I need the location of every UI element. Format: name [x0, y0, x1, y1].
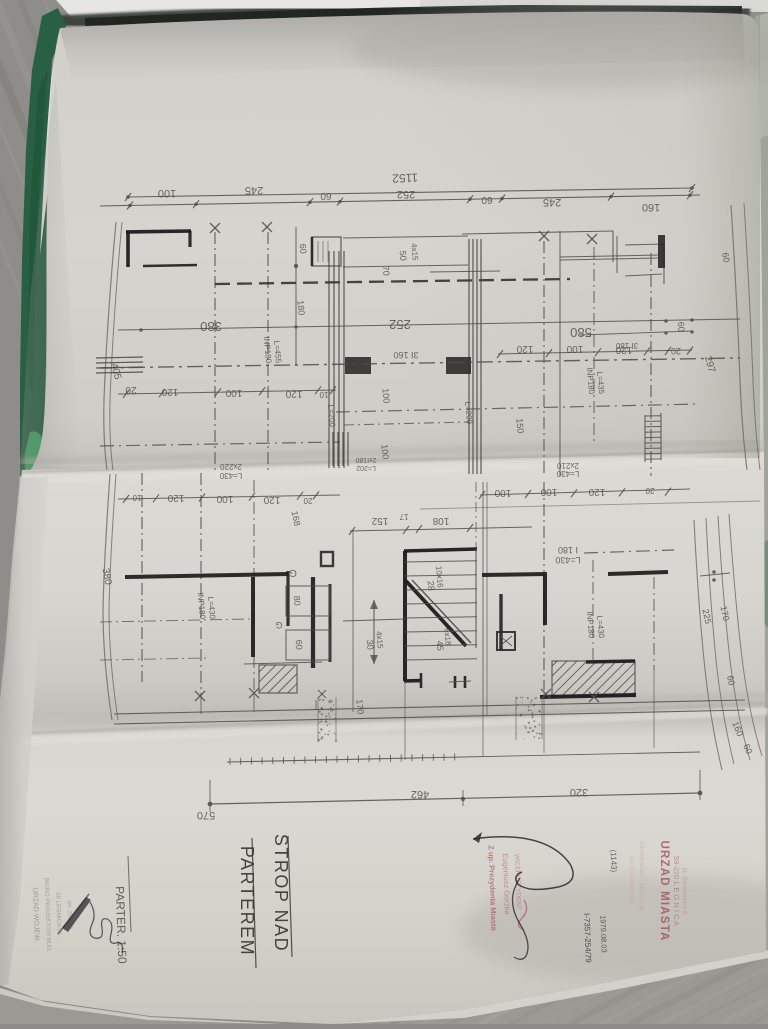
- svg-text:28: 28: [426, 580, 437, 591]
- svg-text:20: 20: [671, 346, 681, 356]
- svg-text:59-220 L E G N I C A: 59-220 L E G N I C A: [672, 856, 681, 926]
- svg-text:60: 60: [298, 243, 309, 254]
- svg-text:L=430: L=430: [555, 555, 580, 565]
- svg-text:120: 120: [285, 388, 302, 399]
- svg-text:120: 120: [516, 343, 533, 354]
- svg-text:L=430: L=430: [556, 469, 579, 478]
- svg-text:70: 70: [381, 265, 392, 276]
- svg-text:pl. Slowianska 8: pl. Slowianska 8: [681, 868, 688, 915]
- svg-text:(1143): (1143): [609, 849, 619, 872]
- svg-text:120: 120: [263, 494, 280, 505]
- svg-text:60: 60: [294, 639, 305, 650]
- svg-text:20: 20: [125, 384, 137, 395]
- svg-text:100: 100: [379, 444, 390, 460]
- svg-text:2x210: 2x210: [557, 461, 579, 470]
- svg-text:60: 60: [676, 321, 687, 332]
- svg-text:120: 120: [615, 344, 632, 355]
- svg-text:4x15: 4x15: [409, 243, 420, 262]
- svg-text:120: 120: [588, 486, 605, 497]
- svg-text:2x220: 2x220: [220, 462, 242, 471]
- svg-text:L=202: L=202: [356, 464, 376, 471]
- svg-text:I-7357-254/79: I-7357-254/79: [582, 913, 593, 964]
- svg-text:wz dokumentacji: wz dokumentacji: [628, 855, 635, 904]
- svg-text:320: 320: [570, 786, 588, 798]
- svg-text:10: 10: [319, 390, 328, 399]
- svg-text:20: 20: [645, 486, 654, 495]
- svg-text:245: 245: [543, 196, 561, 208]
- svg-text:17: 17: [399, 512, 408, 521]
- svg-text:60: 60: [725, 674, 737, 686]
- svg-text:252: 252: [389, 317, 411, 332]
- svg-text:570: 570: [197, 809, 215, 821]
- svg-text:80: 80: [292, 595, 303, 606]
- svg-text:G: G: [275, 620, 282, 630]
- svg-text:170: 170: [354, 699, 365, 715]
- svg-text:108: 108: [432, 515, 449, 526]
- svg-text:Zatwierdzam i przyjmuje: Zatwierdzam i przyjmuje: [638, 841, 645, 911]
- svg-text:30: 30: [365, 639, 376, 650]
- svg-text:160: 160: [642, 201, 660, 213]
- svg-text:100: 100: [494, 487, 511, 498]
- svg-text:I 180: I 180: [558, 545, 578, 555]
- svg-text:245: 245: [245, 184, 263, 196]
- svg-text:252: 252: [397, 188, 415, 200]
- svg-text:2xI180: 2xI180: [355, 456, 376, 463]
- svg-text:100: 100: [158, 187, 176, 199]
- svg-text:50: 50: [398, 250, 409, 261]
- svg-text:L=430: L=430: [219, 471, 242, 480]
- svg-text:120: 120: [161, 386, 178, 397]
- svg-text:150: 150: [514, 418, 525, 434]
- svg-text:100: 100: [540, 486, 557, 497]
- svg-text:580: 580: [570, 325, 592, 340]
- svg-text:120: 120: [167, 492, 184, 503]
- svg-text:1979.08.03: 1979.08.03: [598, 915, 608, 953]
- svg-text:60: 60: [320, 190, 332, 201]
- svg-text:100: 100: [566, 343, 583, 354]
- svg-text:1152: 1152: [392, 171, 419, 186]
- svg-text:G: G: [289, 567, 297, 578]
- svg-text:100: 100: [225, 387, 242, 398]
- svg-text:462: 462: [411, 788, 429, 800]
- svg-text:PARTER. 1:50: PARTER. 1:50: [113, 886, 130, 964]
- svg-text:100: 100: [216, 493, 233, 504]
- svg-text:380: 380: [200, 319, 222, 334]
- svg-text:45: 45: [435, 640, 446, 651]
- svg-text:10: 10: [132, 493, 141, 502]
- svg-text:60: 60: [720, 252, 732, 264]
- svg-text:180: 180: [295, 300, 306, 316]
- svg-text:100: 100: [380, 388, 391, 404]
- svg-text:3I 160: 3I 160: [393, 350, 418, 360]
- svg-text:URZAD MIASTA: URZAD MIASTA: [658, 840, 670, 941]
- svg-text:60: 60: [481, 194, 493, 205]
- svg-text:152: 152: [371, 515, 388, 526]
- svg-text:20: 20: [303, 496, 312, 505]
